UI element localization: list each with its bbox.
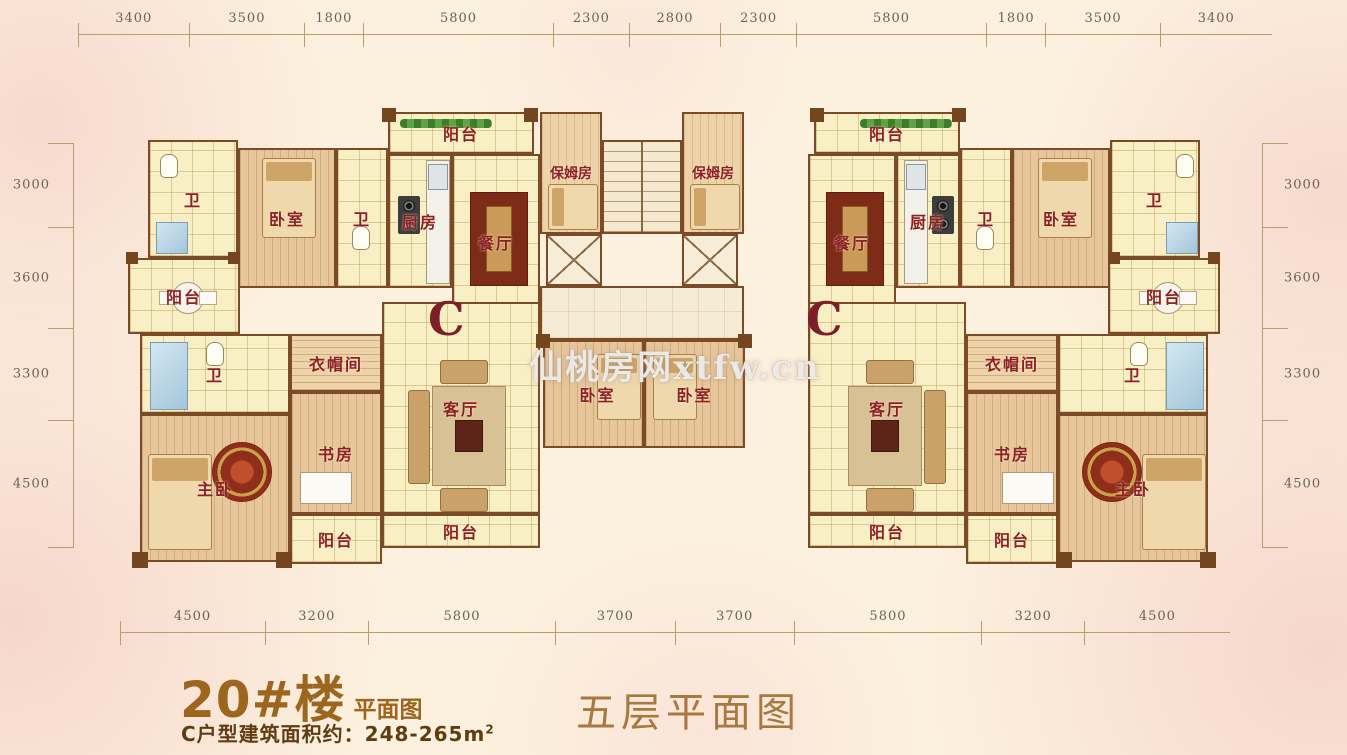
wall-pier bbox=[810, 108, 824, 122]
dimension-value: 3700 bbox=[597, 609, 634, 624]
dimension-value: 2300 bbox=[740, 11, 777, 26]
dimension-value: 3300 bbox=[1284, 367, 1321, 382]
dimension-value: 4500 bbox=[1139, 609, 1176, 624]
room-label: 卧室 bbox=[269, 206, 305, 230]
room-label: 阳台 bbox=[869, 121, 905, 145]
room-label: 卫 bbox=[206, 362, 224, 386]
sofa-icon bbox=[440, 360, 488, 384]
dimension-segment: 3300 bbox=[1262, 328, 1310, 421]
wall-pier bbox=[132, 552, 148, 568]
room-bath-right-1: 卫 bbox=[1110, 140, 1200, 258]
dimension-segment: 4500 bbox=[1262, 421, 1310, 547]
bed-icon bbox=[690, 184, 740, 230]
dimension-segment: 3500 bbox=[1046, 10, 1161, 54]
room-label: 阳台 bbox=[443, 519, 479, 543]
sink-icon bbox=[906, 164, 926, 190]
wall-pier bbox=[228, 252, 240, 264]
dimension-value: 5800 bbox=[440, 11, 477, 26]
dimension-segment: 1800 bbox=[304, 10, 363, 54]
wall-pier bbox=[1208, 252, 1220, 264]
room-label: 阳台 bbox=[166, 284, 202, 308]
dimension-segment: 2300 bbox=[721, 10, 796, 54]
shower-icon bbox=[150, 342, 188, 410]
bed-icon bbox=[548, 184, 598, 230]
shower-icon bbox=[1166, 222, 1198, 254]
unit-letter-right: C bbox=[806, 292, 843, 346]
wall-pier bbox=[382, 108, 396, 122]
dimension-value: 3400 bbox=[1198, 11, 1235, 26]
room-label: 保姆房 bbox=[692, 163, 734, 183]
room-balcony-top-right: 阳台 bbox=[814, 112, 960, 154]
sofa-icon bbox=[408, 390, 430, 484]
elevator-right bbox=[682, 234, 738, 286]
dimension-segment: 3000 bbox=[26, 143, 74, 227]
dimension-segment: 5800 bbox=[363, 10, 553, 54]
room-balcony-mid-right: 阳台 bbox=[1108, 258, 1220, 334]
wall-pier bbox=[1056, 552, 1072, 568]
room-label: 厨房 bbox=[910, 209, 946, 233]
dimension-value: 3500 bbox=[1085, 11, 1122, 26]
wall-pier bbox=[524, 108, 538, 122]
dimension-value: 2800 bbox=[656, 11, 693, 26]
room-balcony-bottom-wide-right: 阳台 bbox=[808, 514, 966, 548]
bed-icon bbox=[148, 454, 212, 550]
elevator-left bbox=[546, 234, 602, 286]
room-label: 厨房 bbox=[402, 209, 438, 233]
toilet-icon bbox=[160, 154, 178, 178]
room-label: 卫 bbox=[1146, 187, 1164, 211]
room-label: 书房 bbox=[994, 441, 1030, 465]
dimension-segment: 5800 bbox=[794, 608, 981, 648]
room-master-bedroom-right: 主卧 bbox=[1058, 414, 1208, 562]
staircase bbox=[602, 140, 682, 234]
room-study-left: 书房 bbox=[290, 392, 382, 514]
dimension-value: 5800 bbox=[873, 11, 910, 26]
room-label: 卫 bbox=[1124, 362, 1142, 386]
room-bedroom-right-top: 卧室 bbox=[1012, 148, 1110, 288]
room-label: 书房 bbox=[318, 441, 354, 465]
room-bedroom-left-top: 卧室 bbox=[238, 148, 336, 288]
room-kitchen-left: 厨房 bbox=[388, 154, 452, 288]
dimension-value: 5800 bbox=[443, 609, 480, 624]
shower-icon bbox=[1166, 342, 1204, 410]
dimension-segment: 5800 bbox=[368, 608, 555, 648]
room-nanny-left: 保姆房 bbox=[540, 112, 602, 234]
dimension-value: 3200 bbox=[1015, 609, 1052, 624]
wall-pier bbox=[276, 552, 292, 568]
room-cloakroom-right: 衣帽间 bbox=[966, 334, 1058, 392]
wall-pier bbox=[1200, 552, 1216, 568]
room-balcony-bottom-small-left: 阳台 bbox=[290, 514, 382, 564]
dimension-segment: 3600 bbox=[1262, 227, 1310, 328]
room-label: 保姆房 bbox=[550, 163, 592, 183]
room-label: 客厅 bbox=[443, 396, 479, 420]
room-label: 主卧 bbox=[1115, 476, 1151, 500]
dimension-rail-top: 3400350018005800230028002300580018003500… bbox=[78, 10, 1272, 54]
room-bath-left-1: 卫 bbox=[148, 140, 238, 258]
dimension-segment: 2800 bbox=[629, 10, 721, 54]
room-bath-right-2: 卫 bbox=[960, 148, 1012, 288]
dimension-segment: 3400 bbox=[78, 10, 190, 54]
dimension-segment: 3000 bbox=[1262, 143, 1310, 227]
dimension-segment: 3700 bbox=[675, 608, 794, 648]
dimension-segment: 3200 bbox=[265, 608, 368, 648]
room-label: 阳台 bbox=[443, 121, 479, 145]
dimension-segment: 3700 bbox=[556, 608, 675, 648]
room-label: 衣帽间 bbox=[309, 351, 363, 375]
dimension-rail-left: 3000360033004500 bbox=[26, 143, 74, 547]
dimension-segment: 1800 bbox=[987, 10, 1046, 54]
dimension-segment: 3400 bbox=[1160, 10, 1272, 54]
room-label: 卫 bbox=[977, 206, 995, 230]
bed-icon bbox=[1142, 454, 1206, 550]
unit-letter-left: C bbox=[428, 292, 465, 346]
room-label: 餐厅 bbox=[478, 230, 514, 254]
toilet-icon bbox=[1176, 154, 1194, 178]
dimension-value: 2300 bbox=[573, 11, 610, 26]
room-label: 阳台 bbox=[318, 527, 354, 551]
room-label: 卫 bbox=[353, 206, 371, 230]
dimension-value: 3600 bbox=[1284, 270, 1321, 285]
wall-pier bbox=[1108, 252, 1120, 264]
dimension-segment: 4500 bbox=[120, 608, 265, 648]
room-study-right: 书房 bbox=[966, 392, 1058, 514]
sink-icon bbox=[428, 164, 448, 190]
dimension-value: 3600 bbox=[13, 270, 50, 285]
unit-area-label: C户型建筑面积约：248-265m bbox=[181, 722, 485, 746]
desk-icon bbox=[1002, 472, 1054, 504]
dimension-value: 3000 bbox=[13, 178, 50, 193]
dimension-segment: 3500 bbox=[190, 10, 305, 54]
room-label: 主卧 bbox=[197, 476, 233, 500]
dimension-value: 3400 bbox=[115, 11, 152, 26]
dimension-value: 4500 bbox=[1284, 476, 1321, 491]
room-bath-left-2: 卫 bbox=[336, 148, 388, 288]
elevator-lobby bbox=[540, 286, 744, 340]
dimension-segment: 3600 bbox=[26, 227, 74, 328]
dimension-segment: 3300 bbox=[26, 328, 74, 421]
room-kitchen-right: 厨房 bbox=[896, 154, 960, 288]
wall-pier bbox=[126, 252, 138, 264]
shower-icon bbox=[156, 222, 188, 254]
room-bath-right-3: 卫 bbox=[1058, 334, 1208, 414]
room-label: 客厅 bbox=[869, 396, 905, 420]
floor-plan-page: 3400350018005800230028002300580018003500… bbox=[0, 0, 1347, 755]
dimension-value: 1800 bbox=[315, 11, 352, 26]
dimension-value: 4500 bbox=[174, 609, 211, 624]
room-label: 阳台 bbox=[994, 527, 1030, 551]
dimension-value: 5800 bbox=[869, 609, 906, 624]
dimension-value: 3300 bbox=[13, 367, 50, 382]
room-balcony-bottom-wide-left: 阳台 bbox=[382, 514, 540, 548]
room-label: 餐厅 bbox=[834, 230, 870, 254]
dimension-value: 3700 bbox=[716, 609, 753, 624]
room-balcony-mid-left: 阳台 bbox=[128, 258, 240, 334]
wall-pier bbox=[952, 108, 966, 122]
dimension-value: 3200 bbox=[298, 609, 335, 624]
unit-area-text: C户型建筑面积约：248-265m2 bbox=[181, 718, 495, 747]
room-label: 阳台 bbox=[869, 519, 905, 543]
watermark: 仙桃房网xtfw.cn bbox=[520, 340, 830, 389]
sofa-icon bbox=[866, 360, 914, 384]
sofa-icon bbox=[440, 488, 488, 512]
room-balcony-top-left: 阳台 bbox=[388, 112, 534, 154]
dimension-rail-bottom: 45003200580037003700580032004500 bbox=[120, 608, 1230, 648]
dimension-segment: 3200 bbox=[982, 608, 1085, 648]
room-cloakroom-left: 衣帽间 bbox=[290, 334, 382, 392]
room-bath-left-3: 卫 bbox=[140, 334, 290, 414]
dimension-rail-right: 3000360033004500 bbox=[1262, 143, 1310, 547]
unit-area-superscript: 2 bbox=[485, 722, 494, 736]
sofa-icon bbox=[866, 488, 914, 512]
dimension-segment: 4500 bbox=[26, 421, 74, 547]
dimension-segment: 4500 bbox=[1085, 608, 1230, 648]
dimension-value: 3500 bbox=[228, 11, 265, 26]
dimension-value: 1800 bbox=[998, 11, 1035, 26]
dimension-value: 3000 bbox=[1284, 178, 1321, 193]
floor-title: 五层平面图 bbox=[576, 680, 801, 738]
room-label: 卧室 bbox=[1043, 206, 1079, 230]
dimension-segment: 2300 bbox=[554, 10, 629, 54]
room-nanny-right: 保姆房 bbox=[682, 112, 744, 234]
dimension-value: 4500 bbox=[13, 476, 50, 491]
dimension-segment: 5800 bbox=[796, 10, 986, 54]
desk-icon bbox=[300, 472, 352, 504]
room-label: 卫 bbox=[184, 187, 202, 211]
room-master-bedroom-left: 主卧 bbox=[140, 414, 290, 562]
room-label: 阳台 bbox=[1146, 284, 1182, 308]
sofa-icon bbox=[924, 390, 946, 484]
room-label: 衣帽间 bbox=[985, 351, 1039, 375]
room-balcony-bottom-small-right: 阳台 bbox=[966, 514, 1058, 564]
